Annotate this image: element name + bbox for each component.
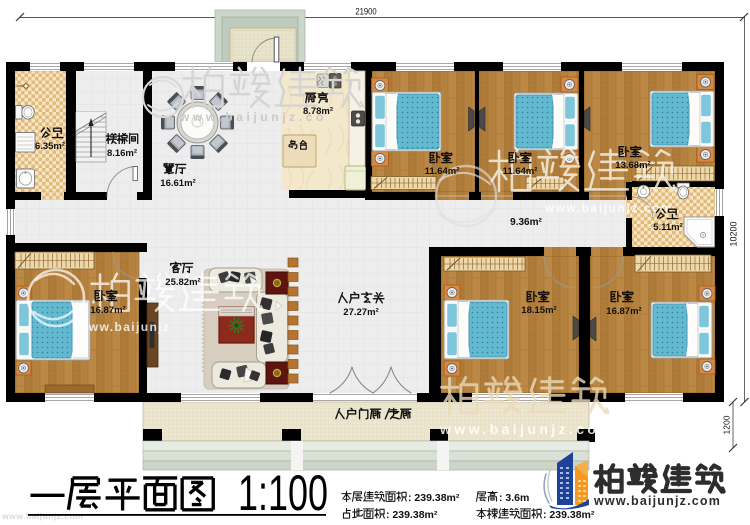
svg-text:8.16m²: 8.16m² [107,148,137,159]
svg-text:9.36m²: 9.36m² [510,217,542,228]
svg-text:: 239.38m²: : 239.38m² [386,509,438,521]
svg-text:www.baijunjz.com: www.baijunjz.com [1,511,83,521]
svg-text:1:100: 1:100 [238,466,328,521]
svg-text:www.baijunjz.com: www.baijunjz.com [593,494,721,508]
svg-text:www.baijunjz: www.baijunjz [77,320,170,334]
svg-text:21900: 21900 [355,6,377,17]
svg-text:8.78m²: 8.78m² [303,106,333,117]
svg-text:18.15m²: 18.15m² [521,305,556,316]
svg-text:16.87m²: 16.87m² [90,305,125,316]
svg-text:10200: 10200 [729,221,739,246]
svg-text:11.64m²: 11.64m² [503,166,538,177]
svg-text:: 3.6m: : 3.6m [499,492,529,504]
svg-text:6.35m²: 6.35m² [35,141,65,152]
svg-text:: 239.38m²: : 239.38m² [408,492,460,504]
svg-text:: 239.38m²: : 239.38m² [543,509,595,521]
svg-text:5.11m²: 5.11m² [653,222,683,233]
svg-text:25.82m²: 25.82m² [165,277,200,288]
svg-text:13.68m²: 13.68m² [615,160,650,171]
svg-text:www.baijunjz.com: www.baijunjz.com [439,421,615,437]
svg-text:11.64m²: 11.64m² [425,166,460,177]
svg-text:16.61m²: 16.61m² [160,178,195,189]
svg-text:1200: 1200 [722,415,732,434]
svg-text:27.27m²: 27.27m² [343,307,378,318]
svg-text:www.baijunjz.com: www.baijunjz.com [544,203,673,215]
svg-text:16.87m²: 16.87m² [606,306,641,317]
